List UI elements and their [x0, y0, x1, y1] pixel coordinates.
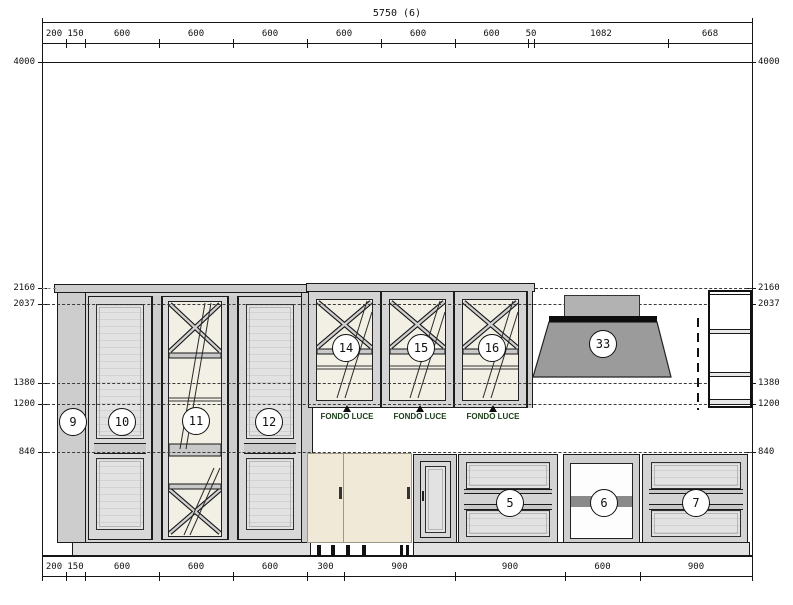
hood-chimney: [564, 295, 640, 317]
left-boundary-line: [42, 22, 43, 576]
callout-10: 10: [108, 408, 136, 436]
bottom-dim-tick-7: [455, 572, 456, 581]
callout-33-number: 33: [596, 337, 610, 351]
bottom-dim-tick-8: [565, 572, 566, 581]
bottom-dim-tick-9: [640, 572, 641, 581]
appliance-foot-1: [317, 545, 321, 556]
left-height-label-4: 1200: [6, 399, 35, 409]
fondo-luce-arrow-1: [343, 405, 351, 412]
callout-14-number: 14: [339, 341, 353, 355]
top-dim-label-9: 1082: [590, 29, 612, 39]
base-narrow-unit-door: [420, 461, 451, 538]
top-dim-tick-8: [528, 39, 529, 48]
bottom-dim-tick-1: [66, 572, 67, 581]
bottom-dim-tick-5: [307, 572, 308, 581]
appliance-foot-4: [362, 545, 366, 556]
bottom-dim-tick-10: [752, 572, 753, 581]
cream-panel-door-right: [343, 453, 412, 543]
open-shelf-2: [710, 372, 750, 377]
left-height-tick-0: [38, 62, 47, 63]
open-shelf-1: [710, 329, 750, 334]
top-dim-tick-3: [159, 39, 160, 48]
callout-5: 5: [496, 489, 524, 517]
top-dim-label-5: 600: [336, 29, 352, 39]
top-dim-tick-10: [668, 39, 669, 48]
base-run-plinth: [413, 542, 750, 556]
base-narrow-door-panel: [425, 466, 446, 533]
ceiling-line: [42, 62, 752, 63]
fondo-luce-label-3: FONDO LUCE: [458, 412, 528, 421]
ref-line-840: [42, 452, 752, 453]
bottom-dim-label-4: 600: [262, 562, 278, 572]
top-dim-label-4: 600: [262, 29, 278, 39]
right-height-label-1: 2160: [758, 283, 788, 293]
fondo-luce-arrow-2: [416, 405, 424, 412]
callout-9-number: 9: [69, 415, 76, 429]
callout-12-number: 12: [262, 415, 276, 429]
bottom-dim-label-6: 900: [391, 562, 407, 572]
total-dim-tick-left: [42, 18, 43, 27]
top-dim-tick-1: [66, 39, 67, 48]
fondo-luce-label-2: FONDO LUCE: [385, 412, 455, 421]
top-dim-tick-6: [381, 39, 382, 48]
door-10-lower-panel: [96, 458, 144, 530]
kitchen-elevation-drawing: 5750 (6) 2001506006006006006006005010826…: [0, 0, 793, 605]
callout-6: 6: [590, 489, 618, 517]
top-dim-tick-5: [307, 39, 308, 48]
fondo-luce-arrow-3: [489, 405, 497, 412]
top-dim-tick-11: [752, 39, 753, 48]
top-dim-line: [42, 43, 752, 44]
callout-11-number: 11: [189, 414, 203, 428]
bottom-dim-label-1: 150: [67, 562, 83, 572]
tall-cabinet-plinth: [72, 542, 311, 556]
top-dim-label-0: 200: [46, 29, 62, 39]
callout-11: 11: [182, 407, 210, 435]
total-dim-tick-right: [752, 18, 753, 27]
cabinet-7-drawer-front: [651, 462, 741, 489]
open-shelf-bottom: [710, 399, 750, 405]
top-dim-label-7: 600: [483, 29, 499, 39]
left-height-label-0: 4000: [6, 57, 35, 67]
bottom-dim-tick-3: [159, 572, 160, 581]
bottom-dim-label-7: 900: [502, 562, 518, 572]
open-shelf-unit: [708, 290, 752, 408]
left-height-label-5: 840: [6, 447, 35, 457]
base-narrow-unit: [413, 454, 457, 543]
callout-15: 15: [407, 334, 435, 362]
bottom-dim-line: [42, 576, 752, 577]
appliance-foot-2: [331, 545, 335, 556]
bottom-dim-label-2: 600: [114, 562, 130, 572]
top-dim-label-2: 600: [114, 29, 130, 39]
bottom-dim-label-3: 600: [188, 562, 204, 572]
base-narrow-door-handle: [422, 491, 424, 501]
callout-6-number: 6: [600, 496, 607, 510]
appliance-foot-5: [400, 545, 403, 556]
top-dim-label-3: 600: [188, 29, 204, 39]
top-dim-label-8: 50: [526, 29, 537, 39]
bottom-dim-tick-0: [42, 572, 43, 581]
callout-7: 7: [682, 489, 710, 517]
callout-7-number: 7: [692, 496, 699, 510]
ref-line-2160-right: [535, 288, 752, 289]
left-height-label-1: 2160: [6, 283, 35, 293]
total-width-label: 5750 (6): [373, 8, 421, 19]
ref-line-2037: [42, 304, 752, 305]
callout-10-number: 10: [115, 415, 129, 429]
cream-door-handle-left: [339, 487, 342, 499]
callout-33: 33: [589, 330, 617, 358]
right-height-label-3: 1380: [758, 378, 788, 388]
right-height-tick-0: [747, 62, 756, 63]
bottom-dim-label-9: 900: [688, 562, 704, 572]
ref-line-2160-left: [42, 288, 56, 289]
bottom-dim-label-8: 600: [594, 562, 610, 572]
top-dim-label-1: 150: [67, 29, 83, 39]
open-shelf-top-line: [710, 294, 750, 295]
callout-12: 12: [255, 408, 283, 436]
top-dim-tick-9: [534, 39, 535, 48]
top-dim-tick-0: [42, 39, 43, 48]
ref-line-1380: [42, 383, 752, 384]
callout-5-number: 5: [506, 496, 513, 510]
hood-centerline-marker: [697, 318, 699, 410]
bottom-dim-tick-4: [233, 572, 234, 581]
right-boundary-line: [752, 22, 753, 576]
left-height-label-3: 1380: [6, 378, 35, 388]
right-height-label-2: 2037: [758, 299, 788, 309]
right-height-label-5: 840: [758, 447, 788, 457]
top-dim-tick-7: [455, 39, 456, 48]
tall-cabinet-stile-b: [228, 296, 238, 540]
tall-cabinet-stile-a: [152, 296, 162, 540]
top-dim-tick-4: [233, 39, 234, 48]
hood-black-band: [549, 316, 657, 322]
bottom-dim-label-5: 300: [317, 562, 333, 572]
total-dim-line: [42, 22, 752, 23]
cream-door-handle-right: [407, 487, 410, 499]
door-12-lower-panel: [246, 458, 294, 530]
bottom-dim-label-0: 200: [46, 562, 62, 572]
top-dim-label-6: 600: [410, 29, 426, 39]
ref-line-1200: [42, 404, 752, 405]
top-dim-label-10: 668: [702, 29, 718, 39]
right-height-label-4: 1200: [758, 399, 788, 409]
bottom-dim-tick-2: [85, 572, 86, 581]
callout-16-number: 16: [485, 341, 499, 355]
left-height-label-2: 2037: [6, 299, 35, 309]
appliance-foot-6: [406, 545, 409, 556]
fondo-luce-label-1: FONDO LUCE: [312, 412, 382, 421]
callout-14: 14: [332, 334, 360, 362]
callout-15-number: 15: [414, 341, 428, 355]
right-height-label-0: 4000: [758, 57, 788, 67]
appliance-foot-3: [346, 545, 350, 556]
cabinet-5-drawer-front: [466, 462, 550, 489]
callout-16: 16: [478, 334, 506, 362]
bottom-dim-tick-6: [344, 572, 345, 581]
top-dim-tick-2: [85, 39, 86, 48]
callout-9: 9: [59, 408, 87, 436]
